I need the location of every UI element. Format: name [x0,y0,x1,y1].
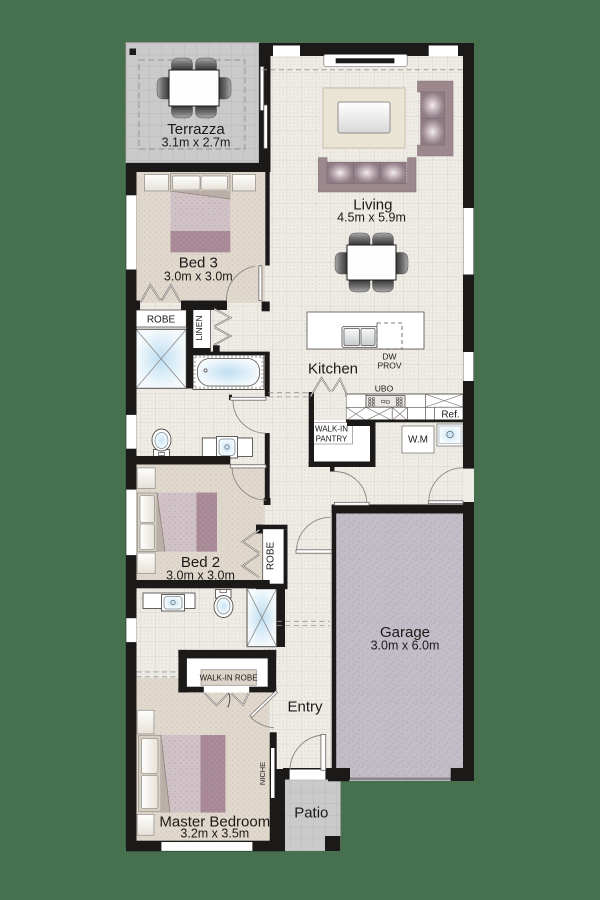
svg-text:WALK-IN ROBE: WALK-IN ROBE [200,674,258,683]
svg-text:3.0m x 3.0m: 3.0m x 3.0m [164,270,233,284]
svg-text:ROBE: ROBE [266,542,277,571]
svg-text:PROV: PROV [377,361,401,371]
svg-text:3.0m x 6.0m: 3.0m x 6.0m [371,639,440,653]
svg-text:4.5m x 5.9m: 4.5m x 5.9m [337,211,406,225]
svg-text:3.2m x 3.5m: 3.2m x 3.5m [180,827,249,841]
svg-text:3.1m x 2.7m: 3.1m x 2.7m [162,136,231,150]
svg-text:UBO: UBO [375,384,394,394]
svg-text:PANTRY: PANTRY [316,435,348,444]
svg-text:W.M: W.M [408,435,428,446]
svg-text:WALK-IN: WALK-IN [315,425,348,434]
svg-text:3.0m x 3.0m: 3.0m x 3.0m [166,569,235,583]
svg-text:Patio: Patio [294,805,328,822]
svg-text:NICHE: NICHE [258,762,267,785]
svg-text:Ref.: Ref. [441,410,459,421]
svg-text:LINEN: LINEN [194,315,204,340]
svg-text:Entry: Entry [287,699,323,716]
svg-text:Kitchen: Kitchen [308,361,358,378]
svg-text:ROBE: ROBE [147,314,176,325]
